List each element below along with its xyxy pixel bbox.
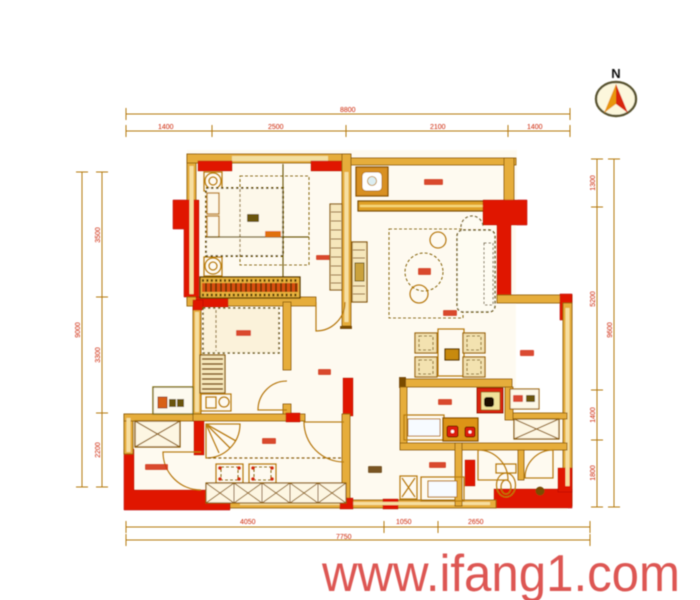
svg-text:9000: 9000	[75, 322, 82, 338]
svg-text:7750: 7750	[336, 534, 352, 541]
svg-text:4050: 4050	[240, 519, 256, 526]
svg-text:1050: 1050	[396, 519, 412, 526]
svg-text:1800: 1800	[590, 465, 597, 481]
svg-text:www.ifang1.com: www.ifang1.com	[321, 545, 680, 600]
svg-text:8800: 8800	[340, 107, 356, 114]
svg-text:2500: 2500	[268, 124, 284, 131]
svg-text:1300: 1300	[590, 175, 597, 191]
svg-text:9600: 9600	[607, 322, 614, 338]
svg-text:2100: 2100	[430, 124, 446, 131]
svg-text:1400: 1400	[158, 124, 174, 131]
svg-text:1400: 1400	[590, 407, 597, 423]
svg-text:2200: 2200	[95, 442, 102, 458]
svg-text:2650: 2650	[468, 519, 484, 526]
svg-text:3300: 3300	[95, 347, 102, 363]
svg-text:5200: 5200	[590, 291, 597, 307]
svg-text:3500: 3500	[95, 227, 102, 243]
svg-text:1400: 1400	[527, 124, 543, 131]
svg-text:N: N	[611, 66, 620, 81]
